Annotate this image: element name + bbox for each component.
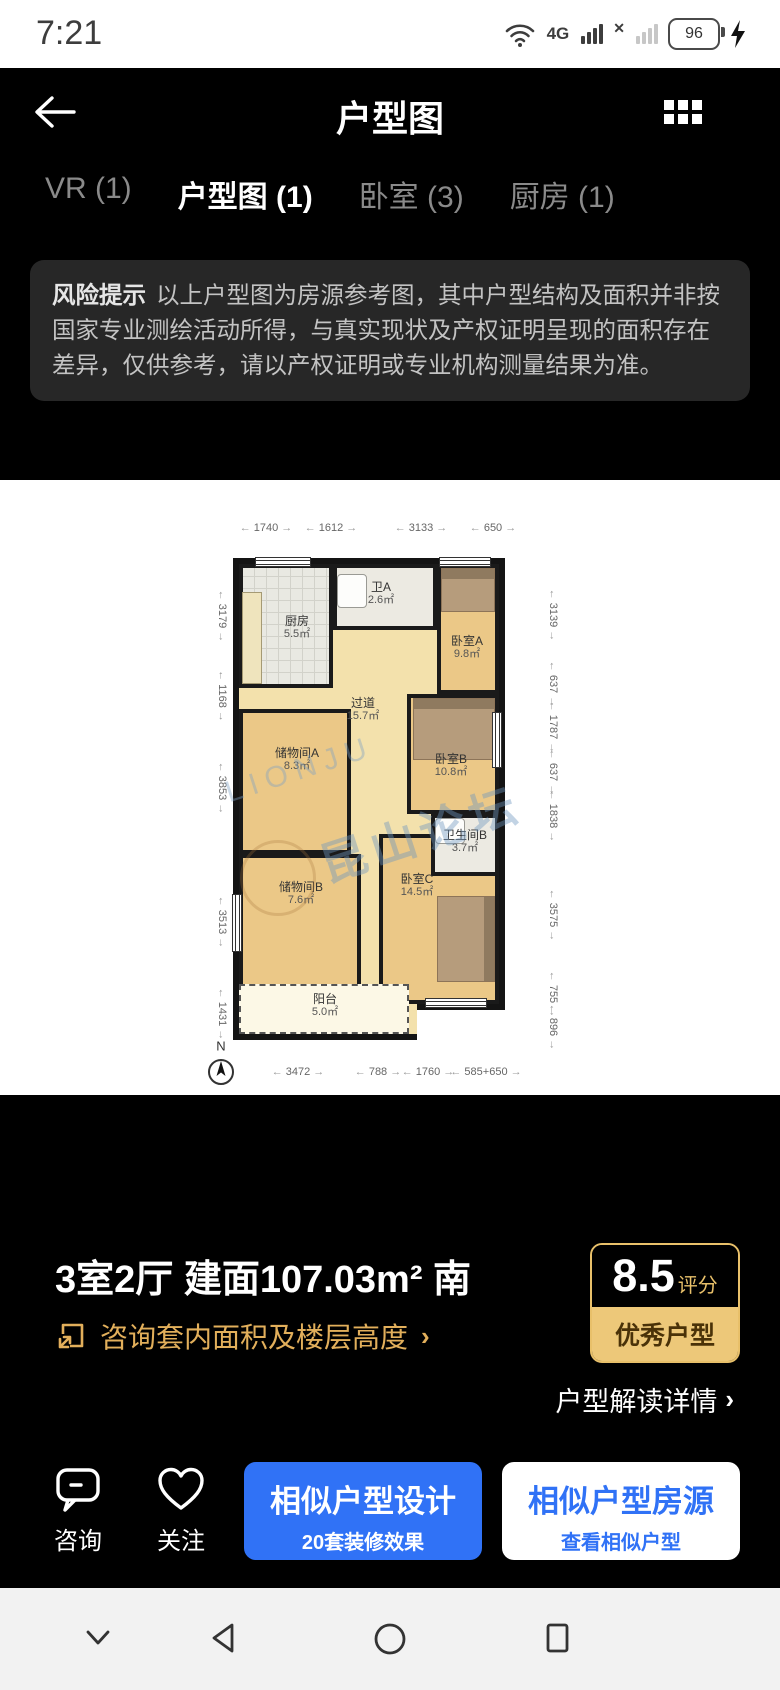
similar-listings-title: 相似户型房源 (502, 1476, 740, 1521)
hide-keyboard-chevron-icon[interactable] (80, 1620, 116, 1654)
dim-bottom-4: 585+650 (450, 1066, 521, 1078)
tab-floorplan[interactable]: 户型图 (1) (178, 172, 313, 216)
status-bar: 7:21 4G ✕ 96 (0, 0, 780, 68)
chevron-right-icon: › (725, 1384, 734, 1415)
chevron-right-icon: › (421, 1321, 430, 1352)
tab-bedroom[interactable]: 卧室 (3) (359, 172, 464, 216)
bed-c (437, 896, 495, 982)
label-balcony: 阳台5.0㎡ (312, 992, 338, 1020)
floorplan-drawing: 厨房5.5㎡ 卫A2.6㎡ 卧室A9.8㎡ 过道15.7㎡ 储物间A8.3㎡ 卧… (233, 558, 505, 1040)
dim-top-2: 1612 (305, 522, 358, 534)
bed-b (413, 698, 495, 760)
battery-icon: 96 (668, 18, 720, 50)
status-icons: 4G ✕ 96 (503, 16, 746, 52)
no-signal-x: ✕ (613, 20, 625, 37)
dim-top-1: 1740 (240, 522, 293, 534)
clock: 7:21 (36, 14, 102, 53)
nav-recents-icon[interactable] (539, 1620, 575, 1658)
dim-bottom-3: 1760 (402, 1066, 455, 1078)
nav-home-icon[interactable] (370, 1620, 410, 1660)
compass-north-label: N (216, 1039, 225, 1054)
dim-left-2: 1168 (216, 670, 228, 722)
label-kitchen: 厨房5.5㎡ (284, 614, 310, 642)
album-tabs: VR (1) 户型图 (1) 卧室 (3) 厨房 (1) (0, 172, 780, 216)
label-bedroom-b: 卧室B10.8㎡ (435, 752, 467, 780)
similar-listings-button[interactable]: 相似户型房源 查看相似户型 (502, 1462, 740, 1560)
dim-left-4: 3513 (216, 896, 228, 949)
chat-bubble-icon (53, 1466, 103, 1512)
consult-link-text: 咨询套内面积及楼层高度 (100, 1316, 408, 1356)
dim-right-6: 3575 (547, 889, 559, 942)
risk-notice: 风险提示以上户型图为房源参考图，其中户型结构及面积并非按国家专业测绘活动所得，与… (30, 260, 750, 401)
dim-right-4: 637 (547, 749, 559, 795)
consult-area-link[interactable]: 咨询套内面积及楼层高度 › (55, 1316, 430, 1356)
window-bedroom-a (439, 557, 491, 567)
window-storage-b (232, 894, 242, 952)
detail-link[interactable]: 户型解读详情 › (555, 1380, 734, 1419)
similar-design-subtitle: 20套装修效果 (244, 1526, 482, 1555)
follow-action[interactable]: 关注 (151, 1466, 211, 1556)
heart-icon (156, 1466, 206, 1512)
floorplan-image[interactable]: 1740 1612 3133 650 3179 1168 3853 3513 1… (0, 480, 780, 1095)
system-nav-bar (0, 1588, 780, 1690)
dim-top-3: 3133 (395, 522, 448, 534)
wifi-icon (503, 20, 537, 48)
dim-right-3: 1787 (547, 701, 559, 754)
tab-vr[interactable]: VR (1) (45, 172, 132, 216)
screen: 7:21 4G ✕ 96 户型图 VR (1) (0, 0, 780, 1690)
unit-summary-title: 3室2厅 建面107.03m² 南 (55, 1248, 471, 1303)
label-bath-b: 卫生间B3.7㎡ (443, 828, 487, 856)
header: 户型图 (0, 68, 780, 156)
kitchen-counter (242, 592, 262, 684)
score-value: 8.5 (612, 1250, 675, 1302)
tab-kitchen[interactable]: 厨房 (1) (510, 172, 615, 216)
window-bedroom-c (425, 998, 487, 1008)
compass-icon (207, 1058, 235, 1086)
risk-notice-label: 风险提示 (52, 282, 146, 308)
room-storage-a (239, 709, 351, 854)
similar-listings-subtitle: 查看相似户型 (502, 1526, 740, 1555)
page-title: 户型图 (0, 90, 780, 142)
consult-action[interactable]: 咨询 (48, 1466, 108, 1556)
battery-percent: 96 (685, 25, 703, 43)
label-bedroom-c: 卧室C14.5㎡ (401, 872, 434, 900)
dim-top-4: 650 (470, 522, 516, 534)
score-badge[interactable]: 8.5 评分 优秀户型 (590, 1243, 740, 1363)
signal-bars-sim1 (581, 24, 603, 44)
floorplan-consult-icon (55, 1320, 87, 1352)
network-4g-label: 4G (547, 24, 570, 44)
risk-notice-text: 以上户型图为房源参考图，其中户型结构及面积并非按国家专业测绘活动所得，与真实现状… (52, 282, 720, 378)
similar-design-button[interactable]: 相似户型设计 20套装修效果 (244, 1462, 482, 1560)
score-tag: 优秀户型 (592, 1307, 738, 1361)
label-storage-a: 储物间A8.3㎡ (275, 746, 319, 774)
dim-left-3: 3853 (216, 762, 228, 815)
dim-bottom-2: 788 (355, 1066, 401, 1078)
bath-a-fixture (337, 574, 367, 608)
dim-right-8: 896 (547, 1004, 559, 1050)
dim-right-1: 3139 (547, 589, 559, 642)
label-bath-a: 卫A2.6㎡ (368, 580, 394, 608)
dim-right-5: 1838 (547, 790, 559, 843)
score-unit: 评分 (678, 1269, 718, 1298)
window-bedroom-b (492, 712, 502, 768)
album-grid-icon[interactable] (664, 100, 702, 124)
dim-left-5: 1431 (216, 988, 228, 1041)
window-kitchen (255, 557, 311, 567)
follow-action-label: 关注 (151, 1521, 211, 1556)
consult-action-label: 咨询 (48, 1521, 108, 1556)
label-bedroom-a: 卧室A9.8㎡ (451, 634, 483, 662)
similar-design-title: 相似户型设计 (244, 1476, 482, 1521)
watermark-stamp (240, 840, 316, 916)
label-hallway: 过道15.7㎡ (347, 696, 379, 724)
detail-link-text: 户型解读详情 (555, 1380, 717, 1419)
bed-a (441, 568, 495, 612)
dim-left-1: 3179 (216, 590, 228, 643)
exterior-cutout (417, 1004, 505, 1040)
charging-bolt-icon (730, 20, 746, 48)
signal-bars-sim2 (636, 24, 658, 44)
dim-bottom-1: 3472 (272, 1066, 325, 1078)
nav-back-icon[interactable] (205, 1620, 241, 1656)
